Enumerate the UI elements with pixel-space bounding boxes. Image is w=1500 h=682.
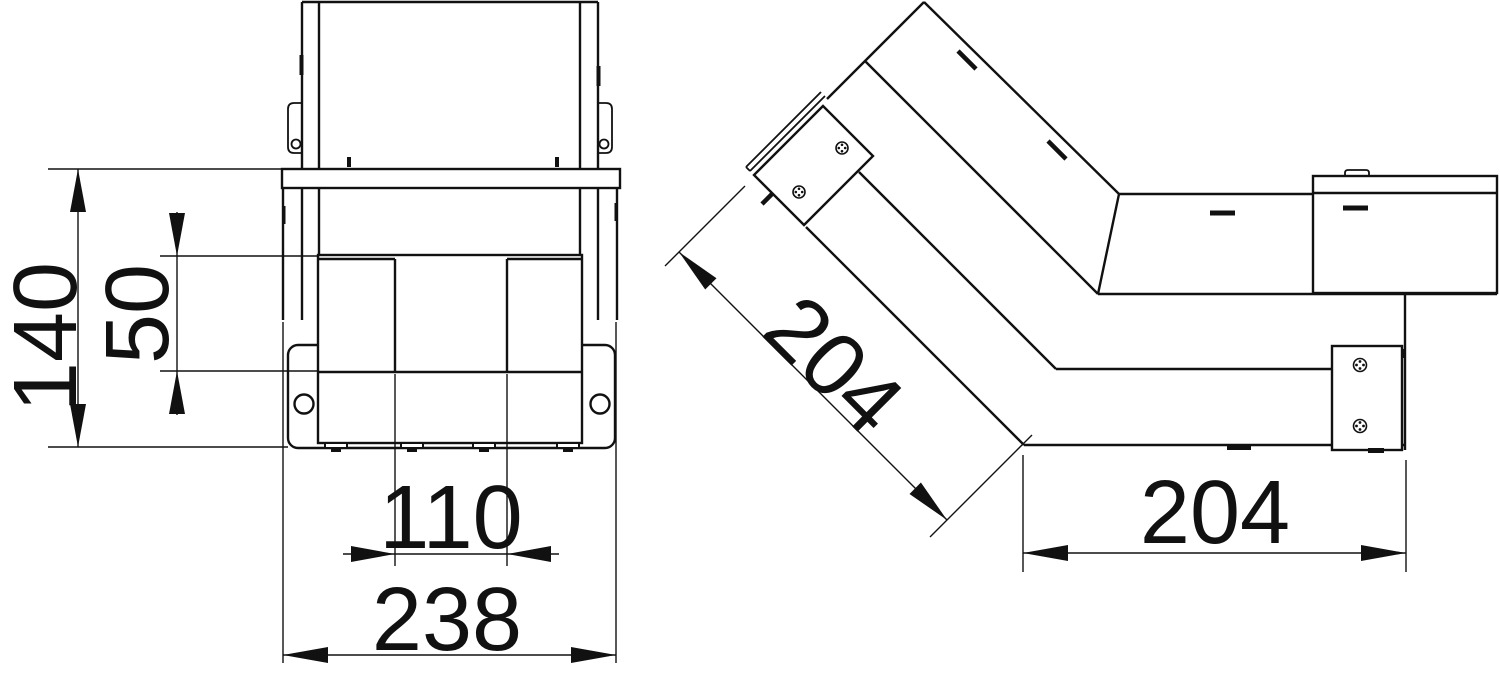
incline-flange-plate xyxy=(754,106,873,225)
louver-slots xyxy=(958,51,1368,213)
front-crossbar xyxy=(282,169,620,188)
duct-elbow-drawing: 140 50 110 238 xyxy=(0,0,1500,682)
foot-under-plate xyxy=(1368,448,1384,453)
dim-horizontal-length-label: 204 xyxy=(1140,463,1290,563)
mount-hole-right xyxy=(591,395,610,414)
technical-drawing-canvas: 140 50 110 238 xyxy=(0,0,1500,682)
mount-hole-left xyxy=(295,395,314,414)
left-clip-hole xyxy=(292,140,301,149)
coupler-top-tab xyxy=(1345,170,1369,175)
dim-overall-height-label: 140 xyxy=(0,262,96,412)
dim-compartment-spacing-label: 110 xyxy=(379,468,522,568)
foot-under-duct xyxy=(1227,445,1251,450)
dimension-204-horizontal: 204 xyxy=(1023,455,1406,572)
side-view: 204 204 xyxy=(665,2,1497,572)
dim-incline-length-label: 204 xyxy=(745,277,922,454)
dim-overall-width-label: 238 xyxy=(372,570,522,670)
front-upper-box xyxy=(302,2,598,169)
right-clip-hole xyxy=(600,140,609,149)
dimension-204-diagonal: 204 xyxy=(665,186,1032,537)
end-flange-tab xyxy=(1401,349,1406,358)
end-flange-plate xyxy=(1332,346,1402,450)
dim-compartment-height-label: 50 xyxy=(88,264,188,364)
front-slot-ticks xyxy=(282,55,618,224)
front-compartment-box xyxy=(318,255,582,443)
front-view: 140 50 110 238 xyxy=(0,2,620,670)
incline-flange-lip-tick xyxy=(762,194,772,204)
